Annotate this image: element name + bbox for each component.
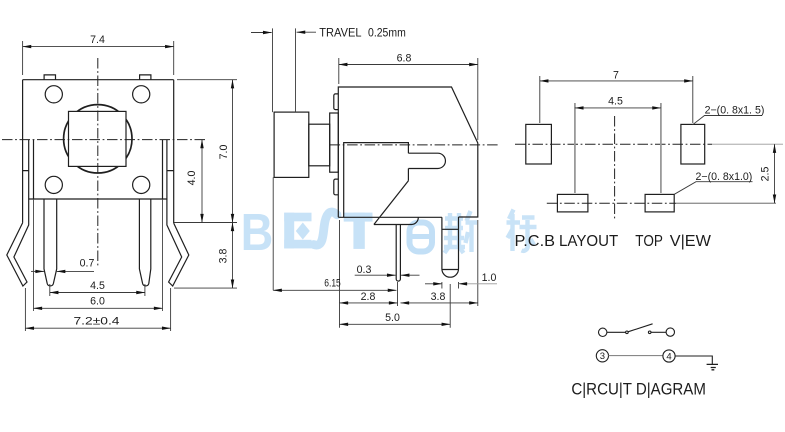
svg-text:V|EW: V|EW xyxy=(670,233,712,250)
svg-text:7: 7 xyxy=(613,70,619,82)
svg-text:6.0: 6.0 xyxy=(90,296,105,308)
svg-text:6.15: 6.15 xyxy=(324,278,341,290)
svg-text:2.5: 2.5 xyxy=(760,167,772,182)
svg-text:7.0: 7.0 xyxy=(218,145,230,160)
svg-text:4.0: 4.0 xyxy=(186,171,198,186)
svg-text:P.C.B: P.C.B xyxy=(515,233,556,250)
svg-text:TRAVEL: TRAVEL xyxy=(319,26,361,40)
svg-text:0.3: 0.3 xyxy=(357,264,372,276)
svg-text:3.8: 3.8 xyxy=(218,249,230,264)
svg-text:0.7: 0.7 xyxy=(80,258,95,270)
svg-text:2.8: 2.8 xyxy=(361,291,376,303)
svg-text:B: B xyxy=(241,204,273,262)
svg-text:6.8: 6.8 xyxy=(397,53,412,65)
svg-text:4.5: 4.5 xyxy=(90,280,105,292)
svg-text:7.4: 7.4 xyxy=(90,34,105,46)
svg-text:TOP: TOP xyxy=(635,233,663,250)
svg-text:4.5: 4.5 xyxy=(608,96,623,108)
svg-text:1.0: 1.0 xyxy=(482,272,497,284)
svg-text:5.0: 5.0 xyxy=(385,312,400,324)
svg-text:LAYOUT: LAYOUT xyxy=(559,233,618,250)
svg-text:C|RCU|T D|AGRAM: C|RCU|T D|AGRAM xyxy=(571,380,706,399)
svg-text:3: 3 xyxy=(600,351,605,362)
svg-text:2−(0. 8x1. 5): 2−(0. 8x1. 5) xyxy=(705,104,765,116)
svg-text:2−(0. 8x1.0): 2−(0. 8x1.0) xyxy=(696,171,753,183)
svg-text:0.25mm: 0.25mm xyxy=(368,26,406,40)
svg-text:3.8: 3.8 xyxy=(431,291,446,303)
svg-text:7.2±0.4: 7.2±0.4 xyxy=(74,316,120,328)
svg-text:4: 4 xyxy=(666,351,671,362)
